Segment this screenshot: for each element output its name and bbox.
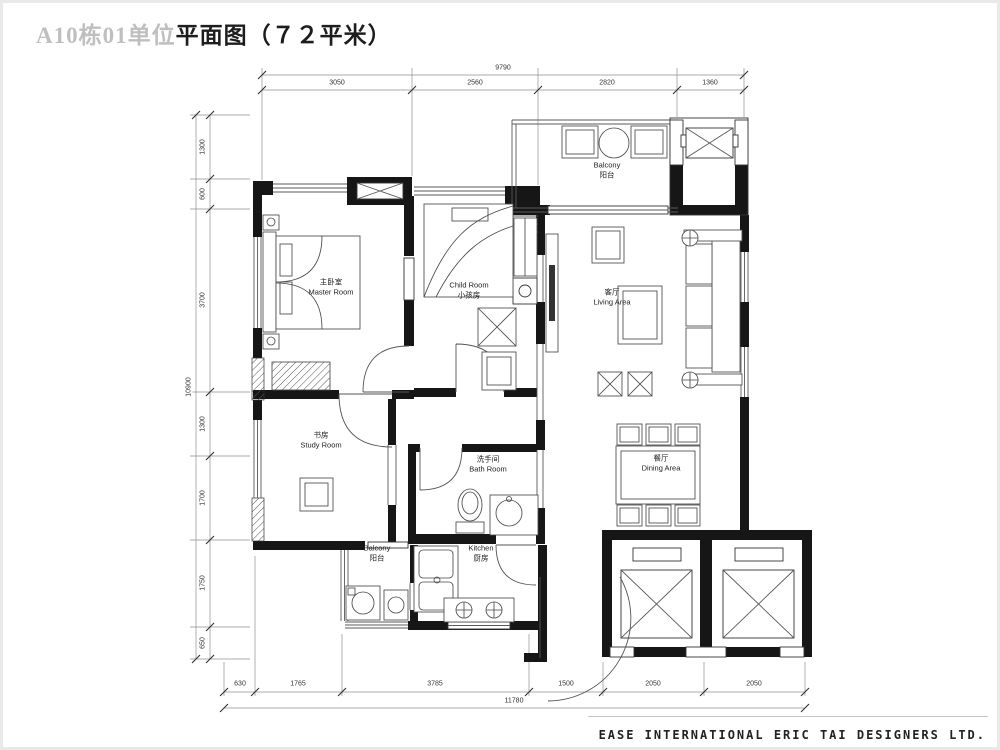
room-label-line1: 客厅 [593,287,630,297]
room-label-child-room: Child Room小孩房 [449,280,488,300]
room-label-line2: 厨房 [468,553,493,563]
dimension-label-left: 1700 [200,489,207,507]
room-label-study-room: 书房Study Room [300,430,341,450]
designer-credit: EASE INTERNATIONAL ERIC TAI DESIGNERS LT… [599,728,986,742]
room-label-line2: 阳台 [594,170,621,180]
room-label-line1: Child Room [449,280,488,290]
room-label-line1: Balcony [364,543,391,553]
floorplan-drawing [0,0,1000,750]
dimension-label-bottom: 1500 [557,681,575,688]
room-label-line2: Bath Room [469,464,507,474]
room-label-line2: 阳台 [364,553,391,563]
dimension-label-bottom: 630 [233,681,247,688]
room-label-line1: 书房 [300,430,341,440]
room-label-master-room: 主卧室Master Room [308,277,353,297]
dimension-label-top: 2560 [466,80,484,87]
room-label-balcony-top: Balcony阳台 [594,160,621,180]
dimension-label-top: 3050 [328,80,346,87]
dimension-label-left: 1300 [200,415,207,433]
room-label-line1: Balcony [594,160,621,170]
dimension-label-bottom: 2050 [644,681,662,688]
floorplan-page: A10栋01单位平面图（７２平米） [0,0,1000,750]
room-label-bath-room: 洗手间Bath Room [469,454,507,474]
room-label-line2: Dining Area [642,463,681,473]
dimension-label-top: 2820 [598,80,616,87]
dimension-label-bottom: 1765 [289,681,307,688]
dimension-label-top: 9790 [494,65,512,72]
room-label-line1: 洗手间 [469,454,507,464]
dimension-label-left: 3700 [200,291,207,309]
room-label-line2: Master Room [308,287,353,297]
room-label-living-area: 客厅Living Area [593,287,630,307]
dimension-label-top: 1360 [701,80,719,87]
footer-divider [588,716,988,717]
room-label-line1: Kitchen [468,543,493,553]
dimension-label-left: 10900 [186,376,193,397]
room-label-line2: 小孩房 [449,290,488,300]
dimension-label-left: 1750 [200,574,207,592]
door-swings [339,344,631,701]
dimension-label-bottom: 11780 [504,698,525,705]
room-label-kitchen: Kitchen厨房 [468,543,493,563]
room-label-dining-area: 餐厅Dining Area [642,453,681,473]
dimension-label-left: 600 [200,187,207,201]
room-label-line2: Living Area [593,297,630,307]
room-label-line1: 餐厅 [642,453,681,463]
room-label-line2: Study Room [300,440,341,450]
dimension-label-bottom: 3785 [426,681,444,688]
dimension-label-left: 1300 [200,138,207,156]
room-label-line1: 主卧室 [308,277,353,287]
dimension-label-bottom: 2050 [745,681,763,688]
dimension-label-left: 650 [200,636,207,650]
room-label-balcony-bottom: Balcony阳台 [364,543,391,563]
